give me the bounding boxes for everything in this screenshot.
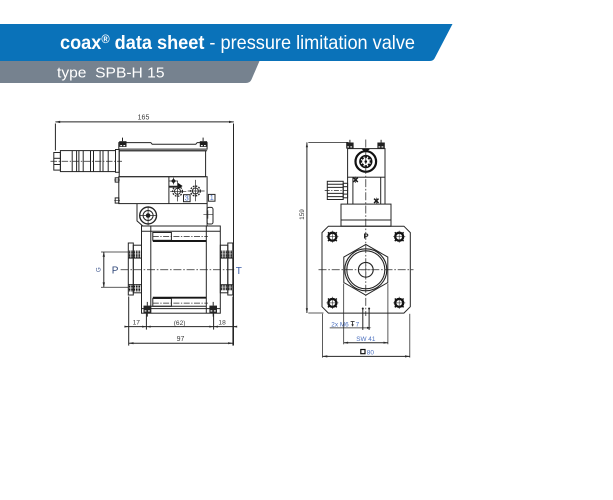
svg-text:18: 18 [218, 320, 226, 327]
svg-text:159: 159 [299, 209, 306, 220]
svg-text:G: G [95, 267, 102, 272]
svg-text:coax® data sheet - pressure li: coax® data sheet - pressure limitation v… [60, 32, 415, 54]
svg-text:17: 17 [133, 320, 141, 327]
svg-text:P: P [112, 266, 119, 277]
svg-text:T: T [236, 266, 242, 277]
svg-text:type SPB-H 15: type SPB-H 15 [57, 65, 165, 81]
svg-text:97: 97 [177, 336, 185, 343]
svg-text:1: 1 [210, 193, 214, 202]
svg-text:80: 80 [367, 349, 375, 356]
svg-text:SW 41: SW 41 [356, 336, 376, 343]
svg-text:(62): (62) [174, 320, 186, 327]
svg-text:3: 3 [185, 194, 189, 203]
svg-text:165: 165 [138, 115, 150, 122]
